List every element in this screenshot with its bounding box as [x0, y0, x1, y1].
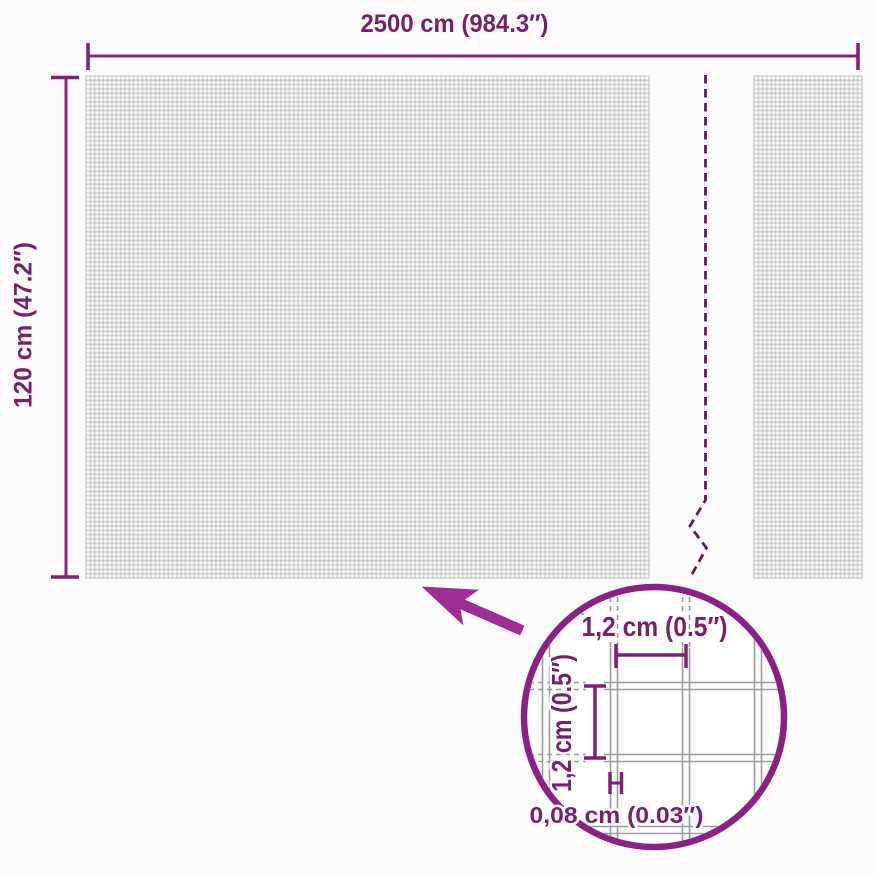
svg-text:2500 cm (984.3″): 2500 cm (984.3″)	[361, 10, 549, 38]
svg-text:1,2 cm (0.5″): 1,2 cm (0.5″)	[582, 611, 728, 642]
svg-text:120 cm (47.2″): 120 cm (47.2″)	[10, 242, 38, 408]
svg-text:1,2 cm (0.5″): 1,2 cm (0.5″)	[546, 654, 577, 792]
svg-text:0,08 cm (0.03″): 0,08 cm (0.03″)	[530, 802, 704, 828]
